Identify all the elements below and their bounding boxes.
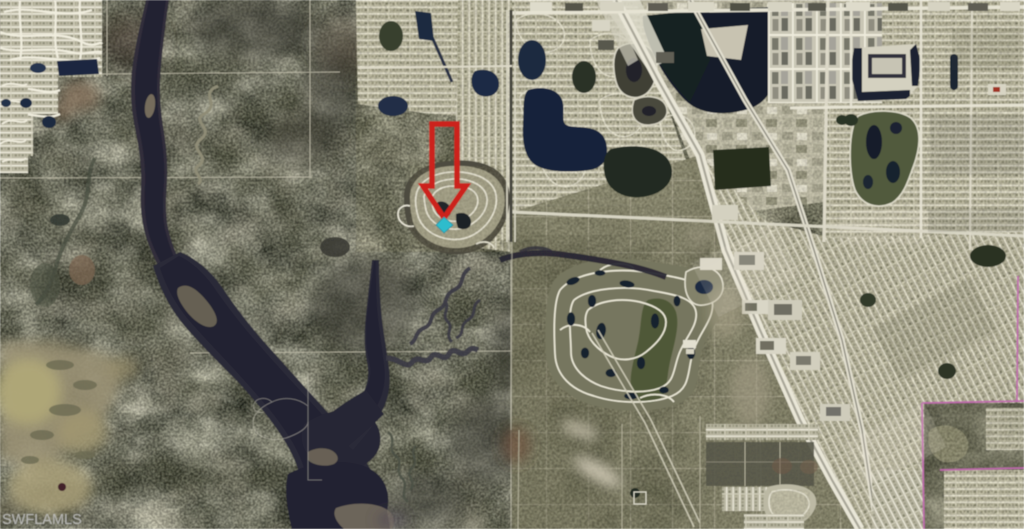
svg-text:SWFLAMLS: SWFLAMLS — [2, 512, 82, 528]
